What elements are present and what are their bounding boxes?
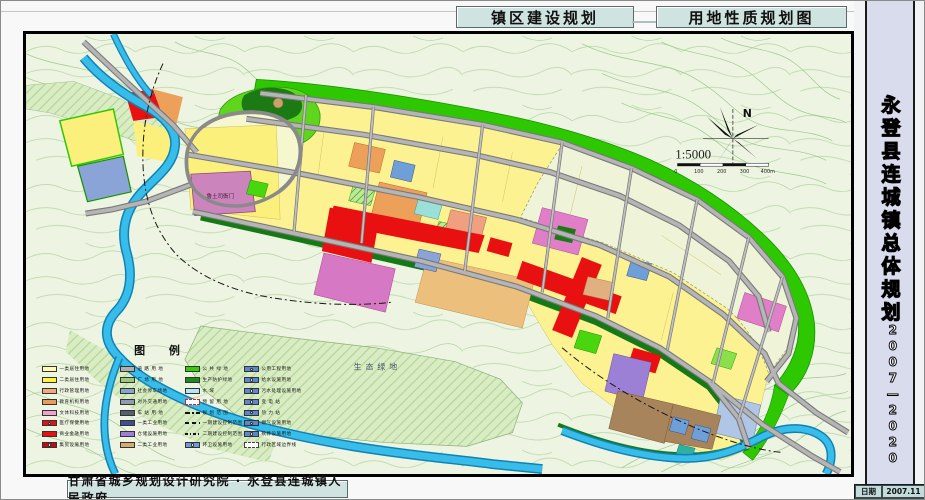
- legend-item-label: 一类工业用地: [138, 420, 168, 426]
- legend-item-label: 仓储设施用地: [138, 431, 168, 437]
- legend-item: 二类居住用地: [42, 375, 90, 386]
- legend-item-label: 一期建设控制范围: [203, 420, 243, 426]
- legend-swatch: [120, 399, 135, 405]
- legend-item: 给水设施用地: [244, 375, 302, 386]
- mound: [273, 98, 283, 108]
- plan-sheet: 镇区建设规划 用地性质规划图: [0, 0, 925, 500]
- legend-item: 仓储设施用地: [120, 429, 168, 440]
- legend-swatch: [244, 410, 259, 416]
- legend-item-label: 给水设施用地: [262, 377, 292, 383]
- legend-swatch: [244, 420, 259, 426]
- legend-column: 一类居住用地二类居住用地行政管理用地教育机构用地文体科技用地医疗保健用地商业金融…: [42, 364, 90, 450]
- legend-swatch: [42, 377, 57, 383]
- legend-item: 污水处理设施用地: [244, 386, 302, 397]
- legend-item-label: 集贸设施用地: [60, 442, 90, 448]
- legend-swatch: [185, 422, 200, 424]
- legend-swatch: [244, 388, 259, 394]
- legend-item-label: 文体科技用地: [60, 410, 90, 416]
- legend-column: 道 路 用 地广 场 用 地社会停车场地对外交通用地车 站 用 地一类工业用地仓…: [120, 364, 168, 450]
- legend-item-label: 行政管理用地: [60, 388, 90, 394]
- svg-text:400m: 400m: [761, 169, 775, 175]
- legend-item: 公 共 绿 地: [185, 364, 243, 375]
- legend-item: 变 电 站: [244, 396, 302, 407]
- legend-item-label: 一类居住用地: [60, 366, 90, 372]
- legend-swatch: [185, 442, 200, 448]
- legend-item-label: 公 共 绿 地: [203, 366, 229, 372]
- legend-item-label: 燃气设施用地: [262, 420, 292, 426]
- legend-title: 图 例: [112, 342, 212, 358]
- legend-item: 商业金融用地: [42, 429, 90, 440]
- legend-item: 教育机构用地: [42, 396, 90, 407]
- legend-item: 社会停车场地: [120, 386, 168, 397]
- legend-item: 水 域: [185, 386, 243, 397]
- legend-swatch: [185, 399, 200, 405]
- legend-swatch: [244, 377, 259, 383]
- title-tab-landuse-plan: 用地性质规划图: [656, 6, 847, 28]
- legend-item-label: 热 力 站: [262, 410, 281, 416]
- legend-item: 生产防护绿地: [185, 375, 243, 386]
- svg-text:0: 0: [674, 169, 677, 175]
- planning-map: N 1:5000 0 100 200 300 400m 生态绿地 鲁土司衙门 图…: [23, 31, 854, 477]
- legend-item: 二期建设控制范围: [185, 429, 243, 440]
- plan-years-vertical: 2007—2020: [886, 323, 900, 467]
- legend-swatch: [185, 433, 200, 435]
- tab-connector: [632, 21, 657, 23]
- legend-swatch: [244, 442, 259, 448]
- legend-swatch: [42, 431, 57, 437]
- date-value: 2007.11: [882, 485, 925, 498]
- legend-item: 行政管理用地: [42, 386, 90, 397]
- legend-swatch: [120, 442, 135, 448]
- legend-item-label: 水 域: [203, 388, 215, 394]
- title-tab-label: 镇区建设规划: [491, 7, 599, 28]
- legend-item: 殡葬设施用地: [244, 429, 302, 440]
- legend-item-label: 二期建设控制范围: [203, 431, 243, 437]
- sheet-stamp: 日期 2007.11 图号 08: [854, 484, 925, 500]
- legend-swatch: [244, 431, 259, 437]
- svg-text:100: 100: [694, 169, 703, 175]
- legend-swatch: [42, 410, 57, 416]
- legend-item: 一类工业用地: [120, 418, 168, 429]
- legend-swatch: [120, 366, 135, 372]
- legend-item-label: 商业金融用地: [60, 431, 90, 437]
- legend-item: 广 场 用 地: [120, 375, 168, 386]
- legend-item-label: 公用工程用地: [262, 366, 292, 372]
- legend-column: 公用工程用地给水设施用地污水处理设施用地变 电 站热 力 站燃气设施用地殡葬设施…: [244, 364, 302, 450]
- legend-item-label: 广 场 用 地: [138, 377, 164, 383]
- legend-swatch: [185, 412, 200, 414]
- legend-item-label: 殡葬设施用地: [262, 431, 292, 437]
- legend-swatch: [185, 366, 200, 372]
- legend-swatch: [244, 366, 259, 372]
- title-block: 永登县连城镇总体规划 2007—2020 日期 2007.11 图号 08: [854, 1, 925, 500]
- legend-swatch: [185, 377, 200, 383]
- legend-item-label: 社会停车场地: [138, 388, 168, 394]
- title-block-panel: 永登县连城镇总体规划 2007—2020: [865, 1, 915, 484]
- legend-item: 二类工业用地: [120, 440, 168, 451]
- legend-item-label: 规 划 范 围: [203, 410, 229, 416]
- legend-item-label: 二类工业用地: [138, 442, 168, 448]
- credit-text: 甘肃省城乡规划设计研究院 · 永登县连城镇人民政府: [68, 472, 347, 500]
- legend-item-label: 环卫设施用地: [203, 442, 233, 448]
- legend-item: 集贸设施用地: [42, 440, 90, 451]
- legend: 图 例 一类居住用地二类居住用地行政管理用地教育机构用地文体科技用地医疗保健用地…: [42, 342, 342, 474]
- legend-item: 规 划 范 围: [185, 407, 243, 418]
- legend-swatch: [42, 399, 57, 405]
- legend-item: 车 站 用 地: [120, 407, 168, 418]
- legend-columns: 一类居住用地二类居住用地行政管理用地教育机构用地文体科技用地医疗保健用地商业金融…: [42, 364, 342, 472]
- title-tab-construction-plan: 镇区建设规划: [456, 6, 634, 28]
- legend-swatch: [244, 399, 259, 405]
- legend-item-label: 医疗保健用地: [60, 420, 90, 426]
- legend-swatch: [120, 388, 135, 394]
- legend-column: 公 共 绿 地生产防护绿地水 域预 留 用 地规 划 范 围一期建设控制范围二期…: [185, 364, 243, 450]
- legend-swatch: [120, 377, 135, 383]
- legend-item: 环卫设施用地: [185, 440, 243, 451]
- yamen-label: 鲁土司衙门: [207, 192, 234, 200]
- legend-swatch: [42, 420, 57, 426]
- svg-text:300: 300: [740, 169, 749, 175]
- legend-swatch: [185, 388, 200, 394]
- legend-swatch: [42, 366, 57, 372]
- compass-n-label: N: [743, 107, 752, 120]
- legend-item-label: 变 电 站: [262, 399, 281, 405]
- legend-item-label: 二类居住用地: [60, 377, 90, 383]
- sheet-title-vertical: 永登县连城镇总体规划: [877, 95, 904, 325]
- legend-swatch: [120, 410, 135, 416]
- legend-item-label: 污水处理设施用地: [262, 388, 302, 394]
- svg-text:200: 200: [717, 169, 726, 175]
- legend-item: 对外交通用地: [120, 396, 168, 407]
- legend-item: 一类居住用地: [42, 364, 90, 375]
- legend-item-label: 对外交通用地: [138, 399, 168, 405]
- legend-item: 热 力 站: [244, 407, 302, 418]
- legend-item: 预 留 用 地: [185, 396, 243, 407]
- legend-item: 行政区域边界线: [244, 440, 302, 451]
- legend-item: 公用工程用地: [244, 364, 302, 375]
- legend-swatch: [120, 420, 135, 426]
- legend-item-label: 预 留 用 地: [203, 399, 229, 405]
- legend-swatch: [42, 442, 57, 448]
- legend-item: 文体科技用地: [42, 407, 90, 418]
- legend-item-label: 道 路 用 地: [138, 366, 164, 372]
- legend-item-label: 生产防护绿地: [203, 377, 233, 383]
- credit-bar: 甘肃省城乡规划设计研究院 · 永登县连城镇人民政府: [67, 480, 348, 498]
- eco-green-label: 生态绿地: [354, 361, 402, 371]
- legend-item-label: 车 站 用 地: [138, 410, 164, 416]
- legend-item: 医疗保健用地: [42, 418, 90, 429]
- legend-swatch: [42, 388, 57, 394]
- date-label: 日期: [855, 485, 882, 498]
- title-tab-label: 用地性质规划图: [688, 7, 814, 28]
- legend-item: 道 路 用 地: [120, 364, 168, 375]
- legend-item: 一期建设控制范围: [185, 418, 243, 429]
- scale-ratio: 1:5000: [675, 147, 711, 161]
- legend-item: 燃气设施用地: [244, 418, 302, 429]
- legend-swatch: [120, 431, 135, 437]
- legend-item-label: 教育机构用地: [60, 399, 90, 405]
- legend-item-label: 行政区域边界线: [262, 442, 297, 448]
